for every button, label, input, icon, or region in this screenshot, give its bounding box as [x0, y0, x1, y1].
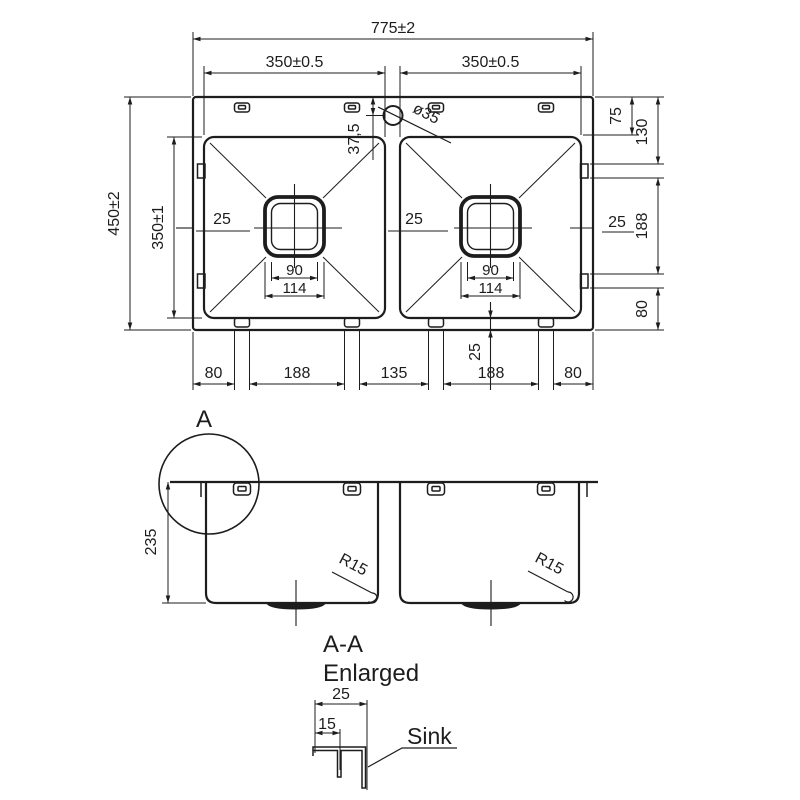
dim-bottom-4: 188	[478, 365, 505, 382]
dim-right-drain-outer: 114	[479, 280, 503, 297]
dim-overall-depth: 450±2	[106, 191, 123, 235]
dim-bowl-depth: 350±1	[150, 205, 167, 249]
dim-left-drain-outer: 114	[283, 280, 307, 297]
dim-right-bowl-width: 350±0.5	[462, 54, 520, 71]
dim-bowl-to-edge-bottom: 25	[467, 343, 484, 361]
section-clips	[234, 483, 555, 495]
detail-circle-a	[159, 434, 259, 534]
section-right-bowl	[400, 482, 579, 603]
dim-left-drain-inner: 90	[286, 262, 303, 279]
dim-right-corner-radius: R15	[532, 550, 566, 579]
dim-left-corner-radius: R15	[336, 551, 370, 580]
detail-title: A-A	[323, 631, 363, 658]
dim-left-bowl-radius: 25	[213, 211, 231, 228]
dim-section-depth: 235	[143, 529, 160, 556]
rim-profile	[313, 747, 366, 788]
side-clips	[198, 164, 589, 288]
centerlines	[176, 116, 634, 391]
dim-right-bowl-radius: 25	[405, 211, 423, 228]
dim-bottom-2: 188	[284, 365, 311, 382]
technical-drawing-sink: 775±2 350±0.5 350±0.5 450±2 350±1 37,5 ø…	[0, 0, 800, 800]
dim-rim-width: 25	[332, 686, 350, 703]
dim-bottom-5: 80	[564, 365, 582, 382]
detail-marker-label: A	[196, 406, 212, 433]
dim-rim-to-clip: 130	[634, 119, 651, 146]
dim-overall-width: 775±2	[371, 20, 415, 37]
bottom-clips	[235, 318, 554, 327]
dim-clip-spacing-right: 188	[634, 213, 651, 240]
sink-outline	[193, 97, 593, 330]
dim-rim-to-bowl: 75	[608, 107, 625, 125]
radius-callouts: R15 R15	[332, 550, 573, 603]
sink-callout-leader	[368, 748, 457, 767]
dim-bottom-3: 135	[381, 365, 408, 382]
sink-callout-label: Sink	[407, 723, 452, 749]
drawing-svg: 775±2 350±0.5 350±0.5 450±2 350±1 37,5 ø…	[0, 0, 800, 800]
dim-left-bowl-width: 350±0.5	[266, 54, 324, 71]
dimension-lines	[130, 39, 658, 384]
top-clips	[235, 103, 554, 112]
detail-view: A-A Enlarged 25 15 Sink	[313, 631, 457, 790]
dim-right-edge-radius: 25	[608, 214, 626, 231]
section-left-bowl	[206, 482, 378, 603]
section-view: A 235 R15 R15	[143, 406, 598, 626]
dim-bottom-1: 80	[205, 365, 223, 382]
dim-faucet-diameter: ø35	[410, 100, 442, 128]
dim-faucet-offset: 37,5	[346, 123, 363, 154]
dim-clip-channel-offset: 15	[318, 716, 336, 733]
dim-clip-to-bottom: 80	[634, 300, 651, 318]
plan-view: 775±2 350±0.5 350±0.5 450±2 350±1 37,5 ø…	[106, 20, 664, 390]
dim-right-drain-inner: 90	[482, 262, 499, 279]
detail-subtitle: Enlarged	[323, 660, 419, 687]
